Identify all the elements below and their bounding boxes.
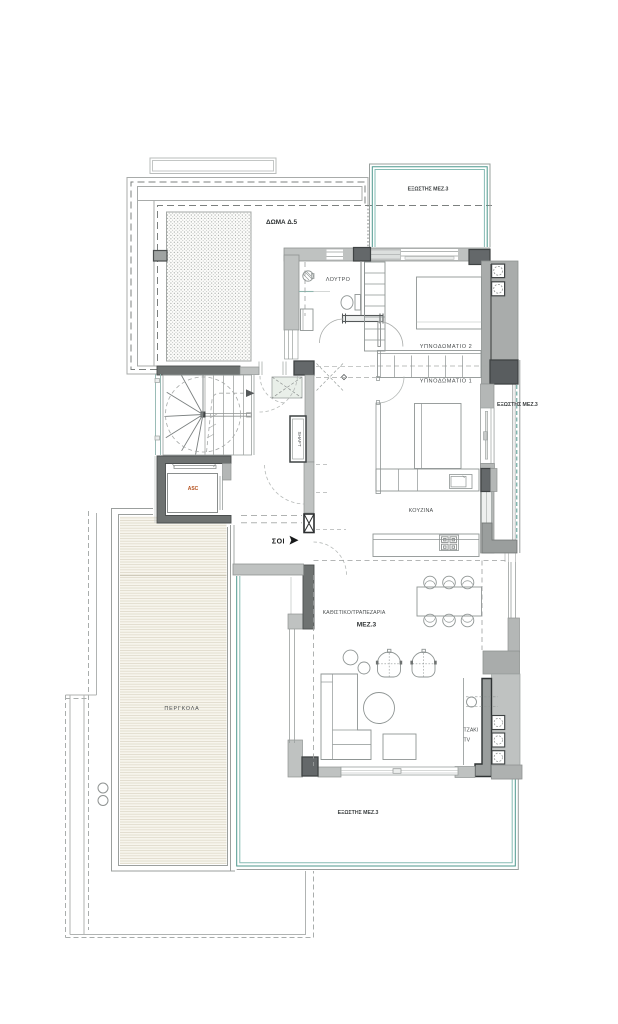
- svg-text:ΣΟΙ: ΣΟΙ: [272, 539, 285, 546]
- svg-text:ΜΕΖ.3: ΜΕΖ.3: [357, 622, 377, 629]
- svg-text:ASC: ASC: [188, 486, 199, 492]
- svg-text:ΕΞΩΣΤΗΣ ΜΕΖ.3: ΕΞΩΣΤΗΣ ΜΕΖ.3: [408, 187, 449, 193]
- svg-text:ΚΟΥΖΙΝΑ: ΚΟΥΖΙΝΑ: [409, 508, 434, 514]
- svg-text:ΕΞΩΣΤΗΣ ΜΕΖ.3: ΕΞΩΣΤΗΣ ΜΕΖ.3: [338, 810, 379, 816]
- svg-text:ΥΠΝΟΔΩΜΑΤΙΟ 2: ΥΠΝΟΔΩΜΑΤΙΟ 2: [420, 344, 472, 350]
- svg-text:ΥΠΝΟΔΩΜΑΤΙΟ 1: ΥΠΝΟΔΩΜΑΤΙΟ 1: [420, 379, 472, 385]
- svg-text:ΕΞΩΣΤΗΣ ΜΕΖ.3: ΕΞΩΣΤΗΣ ΜΕΖ.3: [497, 402, 538, 408]
- svg-text:TV: TV: [464, 738, 471, 744]
- svg-text:ΚΑΘΙΣΤΙΚΟ/ΤΡΑΠΕΖΑΡΙΑ: ΚΑΘΙΣΤΙΚΟ/ΤΡΑΠΕΖΑΡΙΑ: [323, 610, 386, 616]
- svg-text:SHAFT: SHAFT: [297, 431, 302, 446]
- svg-text:ΠΕΡΓΚΟΛΑ: ΠΕΡΓΚΟΛΑ: [164, 706, 199, 712]
- svg-text:ΛΟΥΤΡΟ: ΛΟΥΤΡΟ: [326, 277, 351, 283]
- svg-text:ΤΖΑΚΙ: ΤΖΑΚΙ: [464, 728, 479, 734]
- svg-text:ΔΩΜΑ Δ.5: ΔΩΜΑ Δ.5: [266, 219, 298, 226]
